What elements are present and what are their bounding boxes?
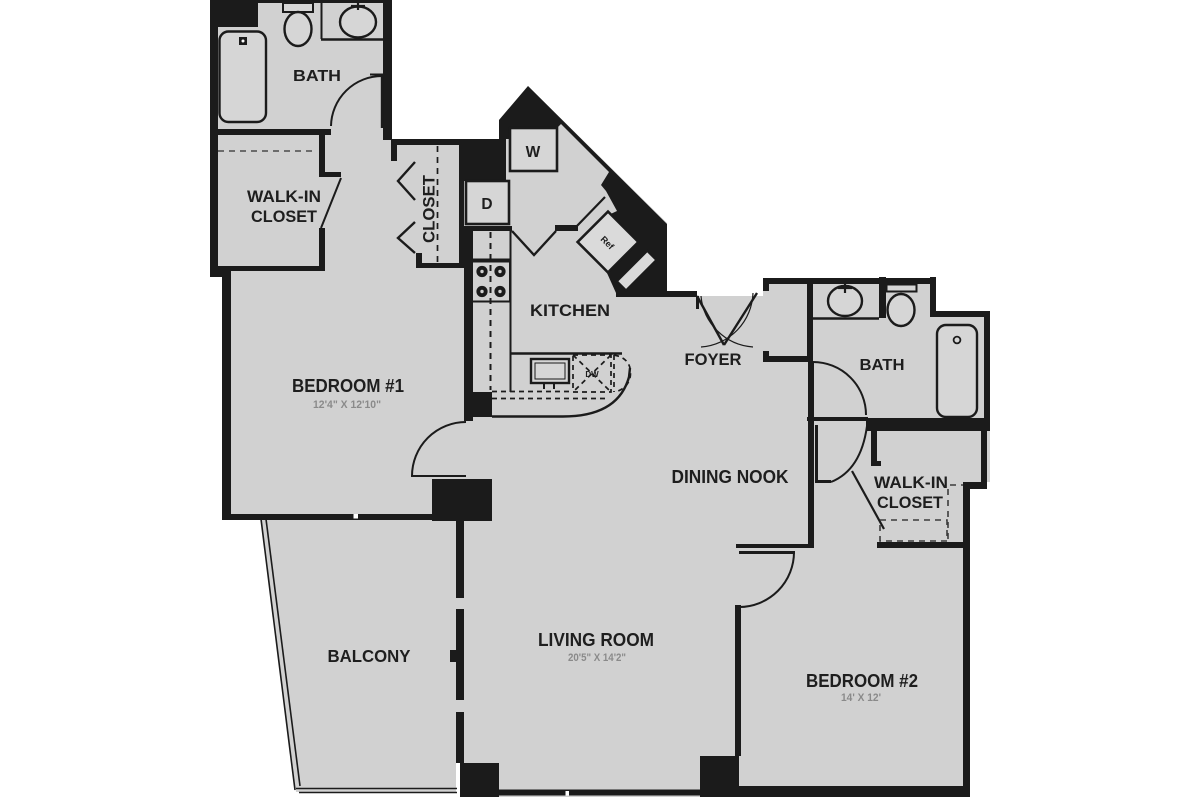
svg-text:BATH: BATH xyxy=(860,357,905,374)
svg-text:WALK-IN: WALK-IN xyxy=(874,473,948,492)
svg-text:W: W xyxy=(526,144,541,161)
svg-text:DINING NOOK: DINING NOOK xyxy=(672,466,790,487)
svg-text:CLOSET: CLOSET xyxy=(251,207,318,226)
svg-text:CLOSET: CLOSET xyxy=(421,175,439,243)
svg-text:20'5" X 14'2": 20'5" X 14'2" xyxy=(568,652,626,664)
svg-text:BEDROOM #1: BEDROOM #1 xyxy=(292,376,404,396)
svg-text:BALCONY: BALCONY xyxy=(328,646,411,666)
svg-text:LIVING ROOM: LIVING ROOM xyxy=(538,630,654,650)
svg-text:BATH: BATH xyxy=(293,68,341,85)
svg-text:FOYER: FOYER xyxy=(685,351,742,369)
svg-text:BEDROOM #2: BEDROOM #2 xyxy=(806,671,918,691)
svg-text:D: D xyxy=(481,196,492,213)
svg-text:KITCHEN: KITCHEN xyxy=(530,301,610,320)
svg-text:CLOSET: CLOSET xyxy=(877,493,944,512)
svg-text:14' X 12': 14' X 12' xyxy=(841,692,881,704)
svg-text:12'4" X 12'10": 12'4" X 12'10" xyxy=(313,399,381,411)
svg-text:WALK-IN: WALK-IN xyxy=(247,187,321,206)
svg-text:DW: DW xyxy=(585,370,599,379)
